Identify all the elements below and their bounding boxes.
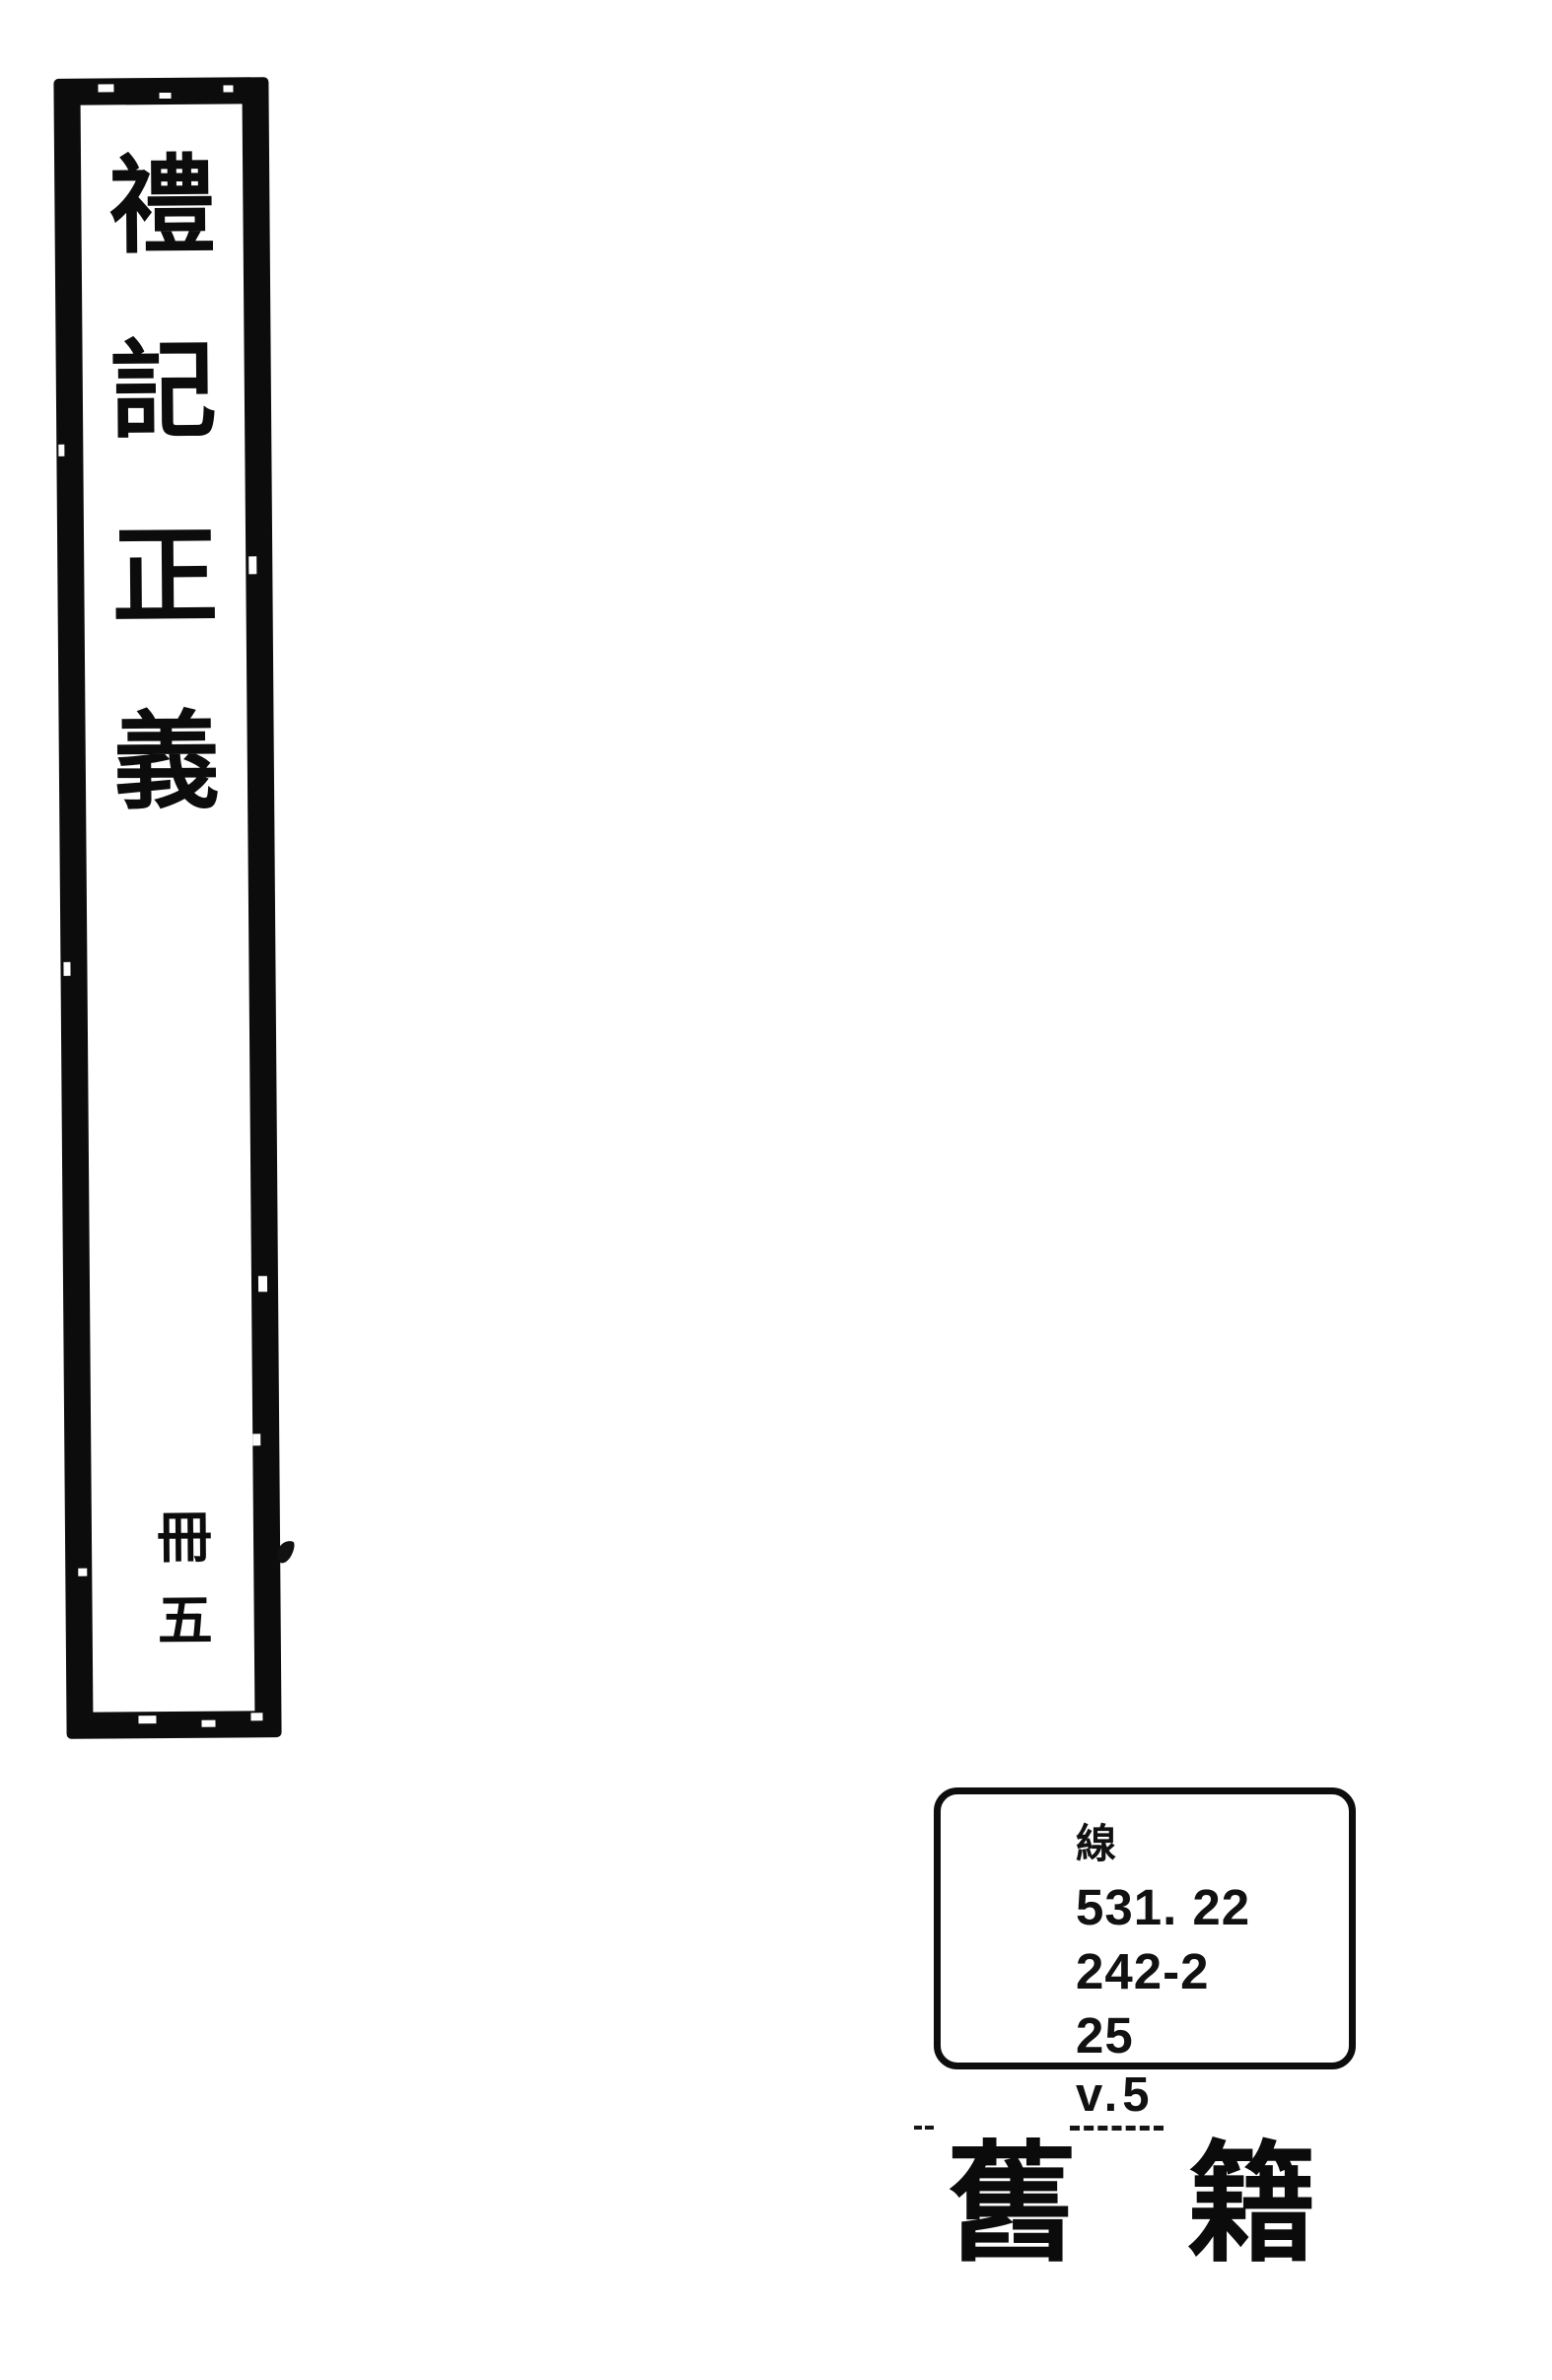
- spine-label-frame: 禮 記 正 義 冊 五: [53, 77, 281, 1739]
- spine-title-char-4: 義: [112, 706, 220, 819]
- spine-volume-vertical: 冊 五: [104, 1507, 266, 1650]
- scan-speckle: [248, 556, 256, 574]
- scan-speckle: [58, 445, 64, 456]
- smudge-artifact: [914, 2126, 934, 2130]
- stamp-char-1: 舊: [947, 2135, 1077, 2275]
- call-number-line-copy: 25: [1076, 2003, 1349, 2067]
- call-number-line-class: 531. 22: [1076, 1875, 1349, 1939]
- scan-speckle: [252, 1434, 260, 1445]
- spine-title-char-3: 正: [111, 521, 219, 634]
- volume-note: v.5: [1070, 2069, 1164, 2131]
- spine-volume-char-1: 冊: [157, 1508, 212, 1568]
- scan-speckle: [160, 93, 172, 99]
- call-number-line-script: 線: [1076, 1812, 1349, 1875]
- scan-speckle: [98, 84, 113, 92]
- scan-speckle: [138, 1715, 156, 1723]
- scan-speckle: [223, 85, 233, 92]
- call-number-line-book: 242-2: [1076, 1939, 1349, 2003]
- scanned-book-cover: 禮 記 正 義 冊 五 線 531. 22 242-2 25 v.5 舊 籍: [0, 0, 1552, 2380]
- scan-page: { "colors": { "ink": "#0b0b0b", "paper":…: [0, 0, 1552, 2380]
- spine-title-char-2: 記: [109, 335, 217, 449]
- spine-volume-char-2: 五: [157, 1591, 212, 1650]
- spine-title-vertical: 禮 記 正 義: [81, 149, 247, 818]
- scan-speckle: [78, 1569, 87, 1576]
- scan-speckle: [250, 1713, 262, 1720]
- scan-speckle: [258, 1276, 267, 1292]
- scan-speckle: [201, 1720, 215, 1727]
- call-number-label: 線 531. 22 242-2 25: [934, 1787, 1356, 2069]
- stamp-char-2: 籍: [1187, 2135, 1317, 2275]
- old-books-stamp: 舊 籍: [947, 2135, 1317, 2275]
- scan-speckle: [63, 962, 70, 976]
- call-number-text: 線 531. 22 242-2 25: [941, 1794, 1349, 2067]
- spine-title-char-1: 禮: [108, 150, 216, 263]
